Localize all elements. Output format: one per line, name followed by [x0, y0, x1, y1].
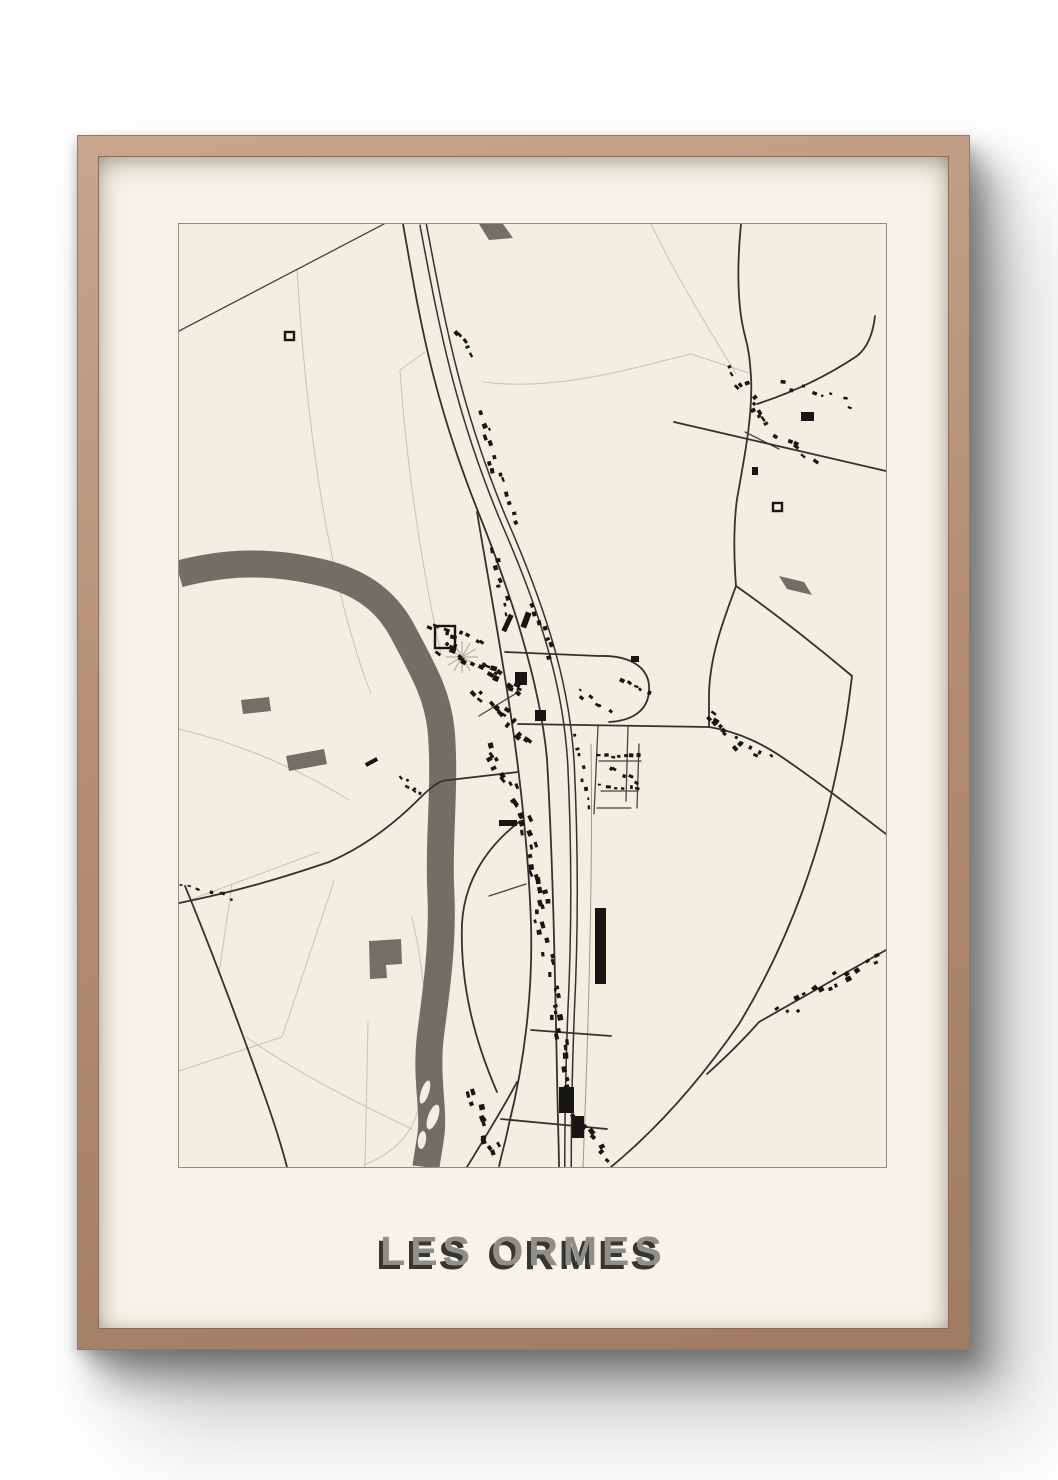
wall: LES ORMES — [0, 0, 1058, 1480]
town-map — [179, 224, 886, 1167]
map-print — [178, 223, 887, 1168]
poster-title: LES ORMES — [99, 1231, 948, 1272]
poster-mat: LES ORMES — [99, 157, 948, 1328]
poster-frame: LES ORMES — [77, 135, 970, 1350]
